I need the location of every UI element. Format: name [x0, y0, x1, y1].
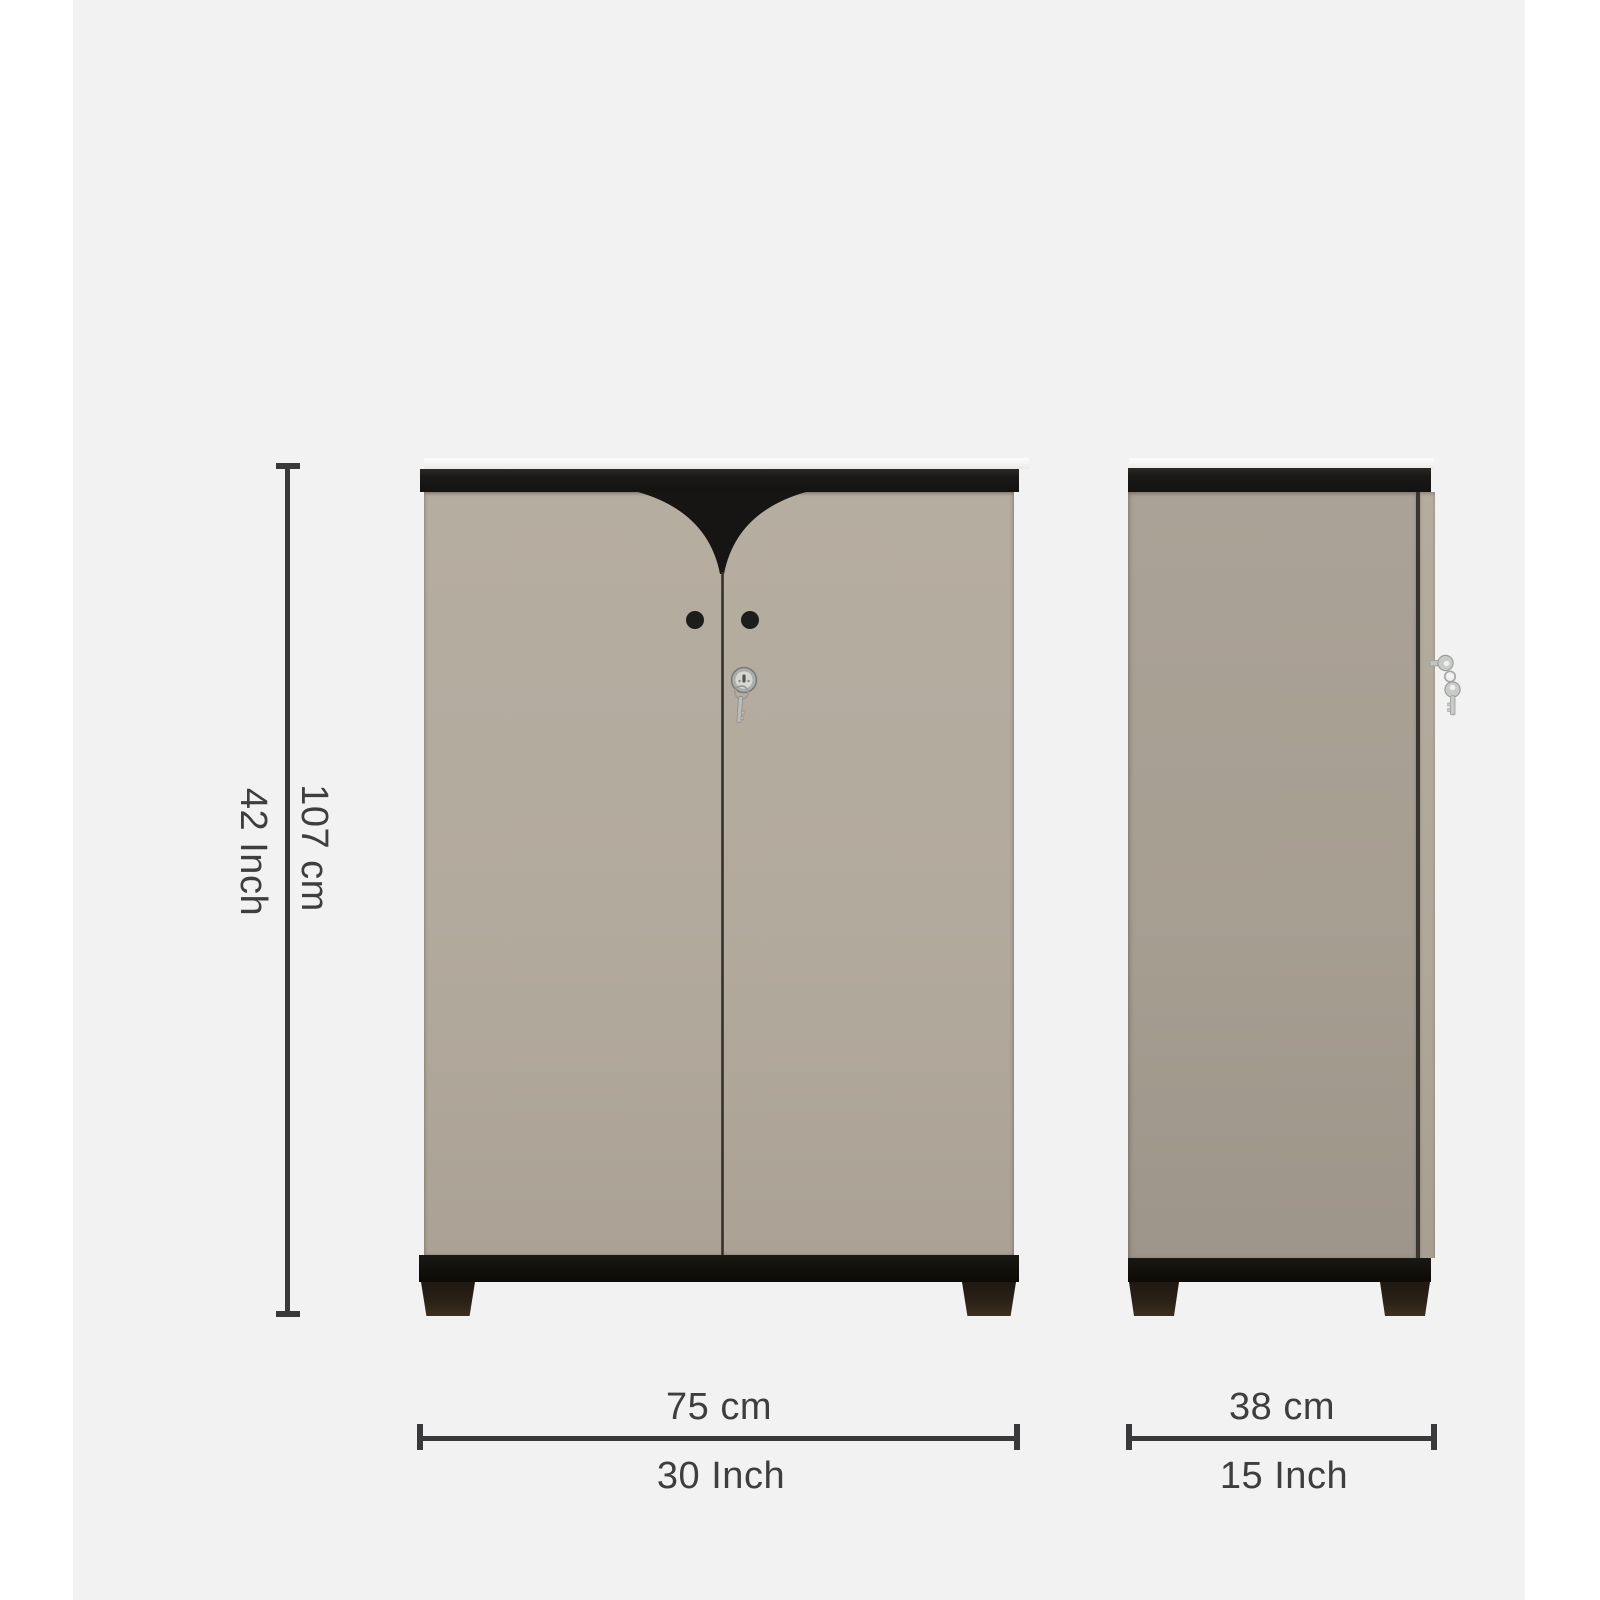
depth-label-inch: 15 Inch: [1220, 1457, 1348, 1495]
front-door-details: [424, 492, 1014, 1255]
door-knob: [741, 611, 759, 629]
width-dimension-line: [420, 1436, 1017, 1441]
cabinet-foot: [421, 1282, 475, 1316]
width-label-cm: 75 cm: [666, 1388, 772, 1426]
width-dimension-cap-left: [417, 1424, 423, 1450]
door-v-notch: [638, 492, 806, 574]
cabinet-foot: [962, 1282, 1016, 1316]
side-top-trim: [1128, 468, 1431, 492]
front-top-surface: [424, 458, 1029, 469]
height-label-cm: 107 cm: [295, 784, 333, 912]
keys-icon: [1423, 645, 1473, 730]
depth-dimension-line: [1129, 1436, 1434, 1441]
depth-dimension-cap-left: [1126, 1424, 1132, 1450]
side-door-edge: [1420, 492, 1435, 1258]
cabinet-foot: [1380, 1282, 1430, 1316]
cabinet-foot: [1129, 1282, 1179, 1316]
depth-dimension-cap-right: [1431, 1424, 1437, 1450]
depth-label-cm: 38 cm: [1229, 1388, 1335, 1426]
side-base-trim: [1128, 1258, 1431, 1282]
height-dimension-line: [285, 464, 290, 1317]
front-top-trim: [420, 469, 1019, 492]
front-base-trim: [419, 1255, 1019, 1282]
diagram-canvas: 42 Inch 107 cm 75 cm 30 Inch 38 cm 15 In…: [73, 0, 1525, 1600]
height-dimension-cap-top: [276, 463, 300, 469]
width-dimension-cap-right: [1014, 1424, 1020, 1450]
width-label-inch: 30 Inch: [657, 1457, 785, 1495]
cabinet-side-panel: [1128, 492, 1416, 1258]
product-dimension-diagram: 42 Inch 107 cm 75 cm 30 Inch 38 cm 15 In…: [0, 0, 1600, 1600]
height-label-inch: 42 Inch: [234, 788, 272, 916]
height-dimension-cap-bottom: [276, 1311, 300, 1317]
door-knob: [686, 611, 704, 629]
